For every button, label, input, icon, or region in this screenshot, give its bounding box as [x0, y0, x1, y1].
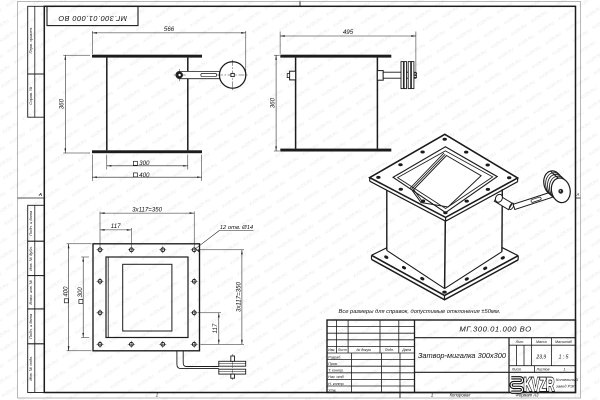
svg-text:566: 566	[164, 26, 175, 33]
svg-text:23,9: 23,9	[535, 355, 546, 361]
svg-text:495: 495	[343, 29, 354, 36]
svg-text:Масса: Масса	[536, 340, 547, 344]
svg-text:117: 117	[212, 323, 219, 333]
svg-text:300: 300	[139, 160, 150, 167]
svg-text:Н. контр.: Н. контр.	[328, 382, 344, 386]
svg-text:А: А	[576, 192, 580, 197]
svg-text:1: 1	[564, 368, 566, 372]
svg-text:400: 400	[139, 172, 150, 179]
svg-text:Утв.: Утв.	[328, 388, 336, 392]
svg-text:Подп. и дата: Подп. и дата	[28, 313, 33, 339]
svg-text:№ докум.: № докум.	[357, 348, 372, 352]
svg-text:Формат А3: Формат А3	[516, 392, 540, 397]
svg-text:завод РЭП: завод РЭП	[555, 383, 576, 388]
svg-text:360: 360	[59, 98, 66, 109]
svg-text:360: 360	[270, 97, 277, 108]
svg-text:Котельный: Котельный	[556, 377, 579, 382]
svg-text:Подп.: Подп.	[385, 348, 394, 352]
svg-text:Пров.: Пров.	[328, 362, 337, 366]
svg-text:400: 400	[63, 286, 69, 297]
svg-text:Лист: Лист	[511, 368, 521, 372]
svg-text:Лист: Лист	[337, 348, 347, 352]
svg-text:12 отв. Ø14: 12 отв. Ø14	[220, 225, 253, 231]
svg-text:1 : 5: 1 : 5	[559, 355, 569, 361]
svg-text:Справ. №: Справ. №	[28, 86, 33, 105]
svg-text:3x117=350: 3x117=350	[132, 206, 162, 213]
svg-text:300: 300	[78, 287, 84, 298]
svg-text:Инв. № подл.: Инв. № подл.	[28, 356, 33, 381]
svg-text:Копировал: Копировал	[450, 392, 471, 397]
svg-text:Все размеры для справок, допус: Все размеры для справок, допустимые откл…	[339, 309, 501, 315]
svg-text:Лит.: Лит.	[515, 340, 524, 344]
svg-text:3x117=350: 3x117=350	[235, 282, 242, 312]
svg-text:Масштаб: Масштаб	[555, 340, 573, 344]
svg-text:Дата: Дата	[401, 348, 411, 352]
svg-text:Изм.: Изм.	[328, 348, 335, 352]
svg-text:МГ.300.01.000 ВО: МГ.300.01.000 ВО	[459, 325, 531, 334]
svg-text:Нач. отд.: Нач. отд.	[328, 375, 344, 379]
svg-text:Перв. примен.: Перв. примен.	[28, 27, 33, 54]
svg-text:А: А	[38, 192, 43, 198]
svg-text:Листов: Листов	[535, 368, 549, 372]
svg-text:Взам. инв. №: Взам. инв. №	[28, 279, 33, 304]
svg-text:Инв. № дубл.: Инв. № дубл.	[28, 246, 33, 271]
svg-text:Затвор-мигалка 300х300: Затвор-мигалка 300х300	[418, 351, 507, 360]
svg-text:1: 1	[431, 392, 433, 397]
svg-text:МГ.300.01.000 ВО: МГ.300.01.000 ВО	[58, 14, 127, 23]
svg-text:Т. контр.: Т. контр.	[328, 369, 344, 373]
svg-text:117: 117	[111, 223, 121, 230]
svg-text:Разраб.: Разраб.	[328, 355, 341, 359]
svg-text:Подп. и дата: Подп. и дата	[28, 210, 33, 236]
